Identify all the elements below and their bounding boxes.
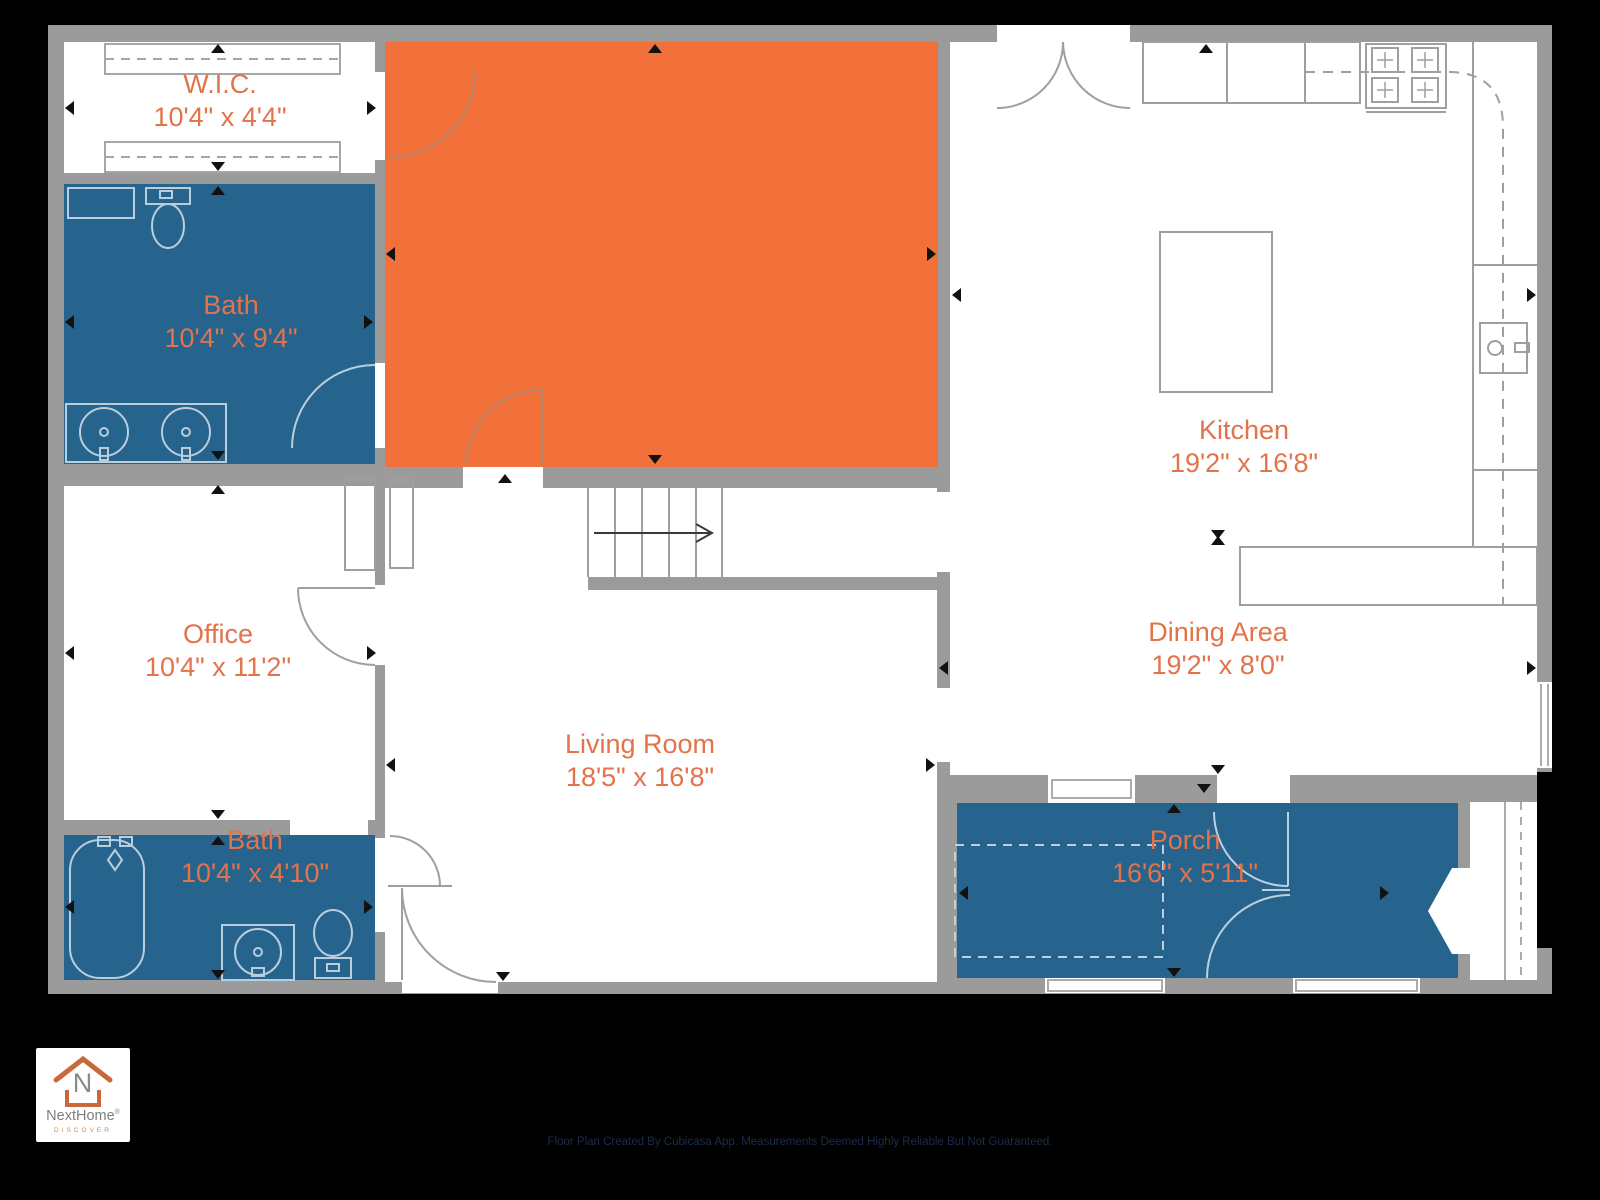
footer-disclaimer: Floor Plan Created By Cubicasa App. Meas… <box>548 1136 1053 1148</box>
room-bath-upper-area <box>64 184 375 464</box>
logo-tagline: DISCOVER <box>36 1127 130 1134</box>
logo-letter: N <box>36 1068 130 1099</box>
room-office-area <box>64 486 375 820</box>
trademark-mark: ® <box>115 1109 120 1116</box>
porch-steps-area <box>1470 802 1537 980</box>
room-living-area <box>385 488 937 982</box>
nexthome-logo: N NextHome® DISCOVER <box>36 1048 130 1142</box>
room-wic-area <box>64 42 375 173</box>
stairs-lower-wall <box>588 577 948 590</box>
logo-name: NextHome® <box>36 1108 130 1124</box>
floor-plan-page: W.I.C. 10'4" x 4'4" Bath 10'4" x 9'4" Ki… <box>0 0 1600 1200</box>
room-kitchen-dining-area <box>950 42 1537 775</box>
floor-plan-drawing <box>0 0 1600 1200</box>
